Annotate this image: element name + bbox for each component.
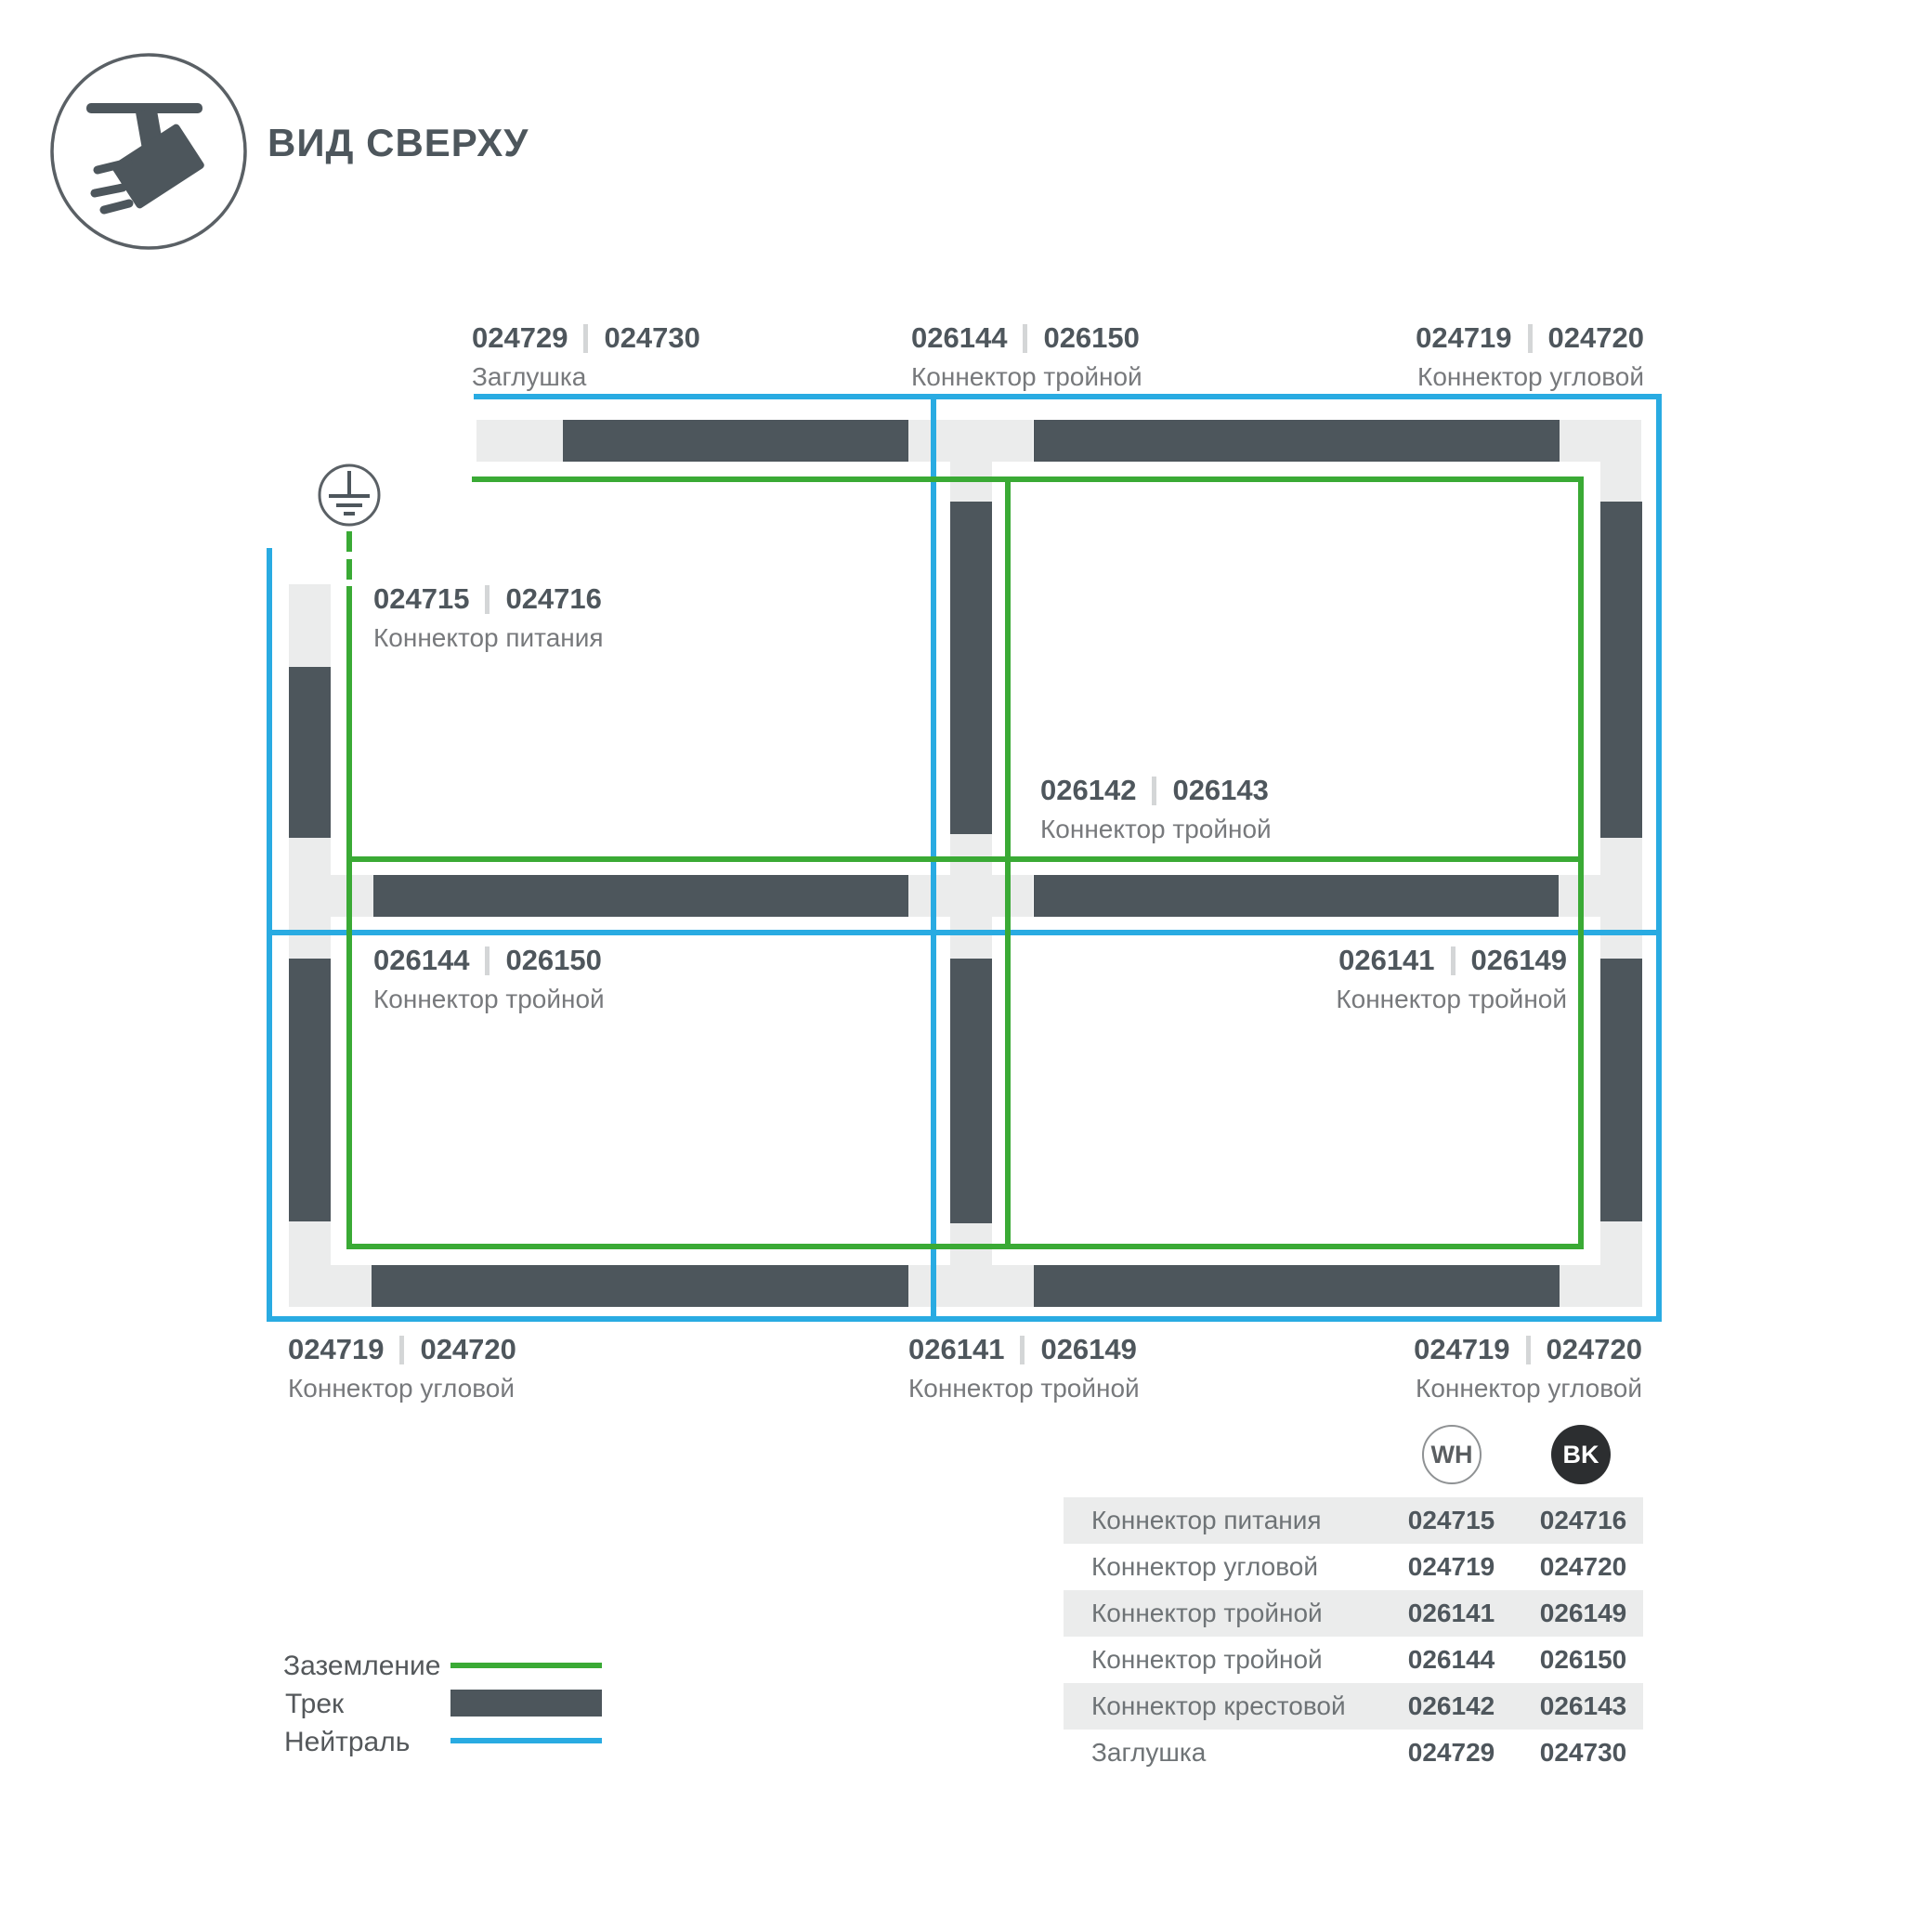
connector-corner-top-right <box>1560 420 1641 462</box>
track-segment <box>950 959 992 1223</box>
neutral-line-left <box>267 548 272 1322</box>
label-bottom-right-corner: 024719024720 Коннектор угловой <box>1414 1333 1642 1403</box>
top-view-installation-diagram: ВИД СВЕРХУ <box>0 0 1932 1932</box>
connector-tee-top <box>908 420 1033 462</box>
legend-swatch-ground-line <box>450 1663 602 1668</box>
legend-swatch-track-bar <box>450 1690 602 1717</box>
ground-line-top <box>472 476 1584 482</box>
neutral-line-middle <box>267 930 1662 935</box>
connector-power-feed <box>289 584 331 667</box>
connector-tee-mid-left-stub <box>331 875 373 917</box>
track-segment <box>289 959 331 1221</box>
neutral-line-bottom <box>267 1316 1662 1322</box>
page-title: ВИД СВЕРХУ <box>268 121 529 165</box>
parts-table: Коннектор питания 024715 024716 Коннекто… <box>1064 1497 1643 1776</box>
code-separator <box>1528 324 1533 353</box>
table-row: Коннектор угловой 024719 024720 <box>1064 1544 1643 1590</box>
ground-line-center <box>1005 476 1011 1249</box>
connector-corner-top-right-stub <box>1600 462 1641 502</box>
track-segment <box>289 667 331 838</box>
label-top-corner: 024719024720 Коннектор угловой <box>1416 321 1644 392</box>
legend-item-neutral: Нейтраль <box>284 1727 410 1758</box>
connector-tee-mid-right <box>1600 838 1642 959</box>
ground-line-right <box>1578 476 1584 1249</box>
label-top-tee: 026144026150 Коннектор тройной <box>911 321 1142 392</box>
code-separator <box>1526 1336 1531 1364</box>
table-row: Заглушка 024729 024730 <box>1064 1730 1643 1776</box>
ground-line-left <box>346 586 352 1249</box>
label-bottom-left-corner: 024719024720 Коннектор угловой <box>288 1333 516 1403</box>
ground-line-bottom <box>346 1244 1584 1249</box>
label-bottom-tee: 026141026149 Коннектор тройной <box>908 1333 1140 1403</box>
connector-cross-center-stub <box>950 834 992 959</box>
code-separator <box>1020 1336 1025 1364</box>
ground-line-dashed-drop <box>346 531 352 584</box>
connector-tee-mid-left <box>289 838 331 959</box>
ground-line-middle <box>346 856 1584 862</box>
label-power-feed: 024715024716 Коннектор питания <box>373 582 604 653</box>
connector-tee-bottom <box>908 1265 1034 1307</box>
ground-earth-icon <box>316 462 383 529</box>
track-spotlight-icon <box>48 51 249 252</box>
legend-item-ground: Заземление <box>283 1651 440 1682</box>
table-row: Коннектор питания 024715 024716 <box>1064 1497 1643 1544</box>
neutral-line-top <box>474 394 1662 399</box>
connector-corner-bottom-right-stub <box>1600 1221 1642 1307</box>
code-separator <box>583 324 588 353</box>
track-segment <box>372 1265 908 1307</box>
table-row: Коннектор тройной 026141 026149 <box>1064 1590 1643 1637</box>
track-segment <box>373 875 908 917</box>
color-badge-black: BK <box>1551 1425 1611 1484</box>
legend-item-track: Трек <box>285 1689 344 1720</box>
neutral-line-right <box>1656 394 1662 1322</box>
color-badge-white: WH <box>1422 1425 1482 1484</box>
track-segment <box>950 502 992 834</box>
code-separator <box>1023 324 1027 353</box>
label-center-cross: 026142026143 Коннектор тройной <box>1040 774 1272 844</box>
track-segment <box>1600 502 1642 838</box>
table-row: Коннектор крестовой 026142 026143 <box>1064 1683 1643 1730</box>
code-separator <box>399 1336 404 1364</box>
track-segment <box>1600 959 1642 1221</box>
label-mid-left-tee: 026144026150 Коннектор тройной <box>373 944 605 1014</box>
code-separator <box>485 585 490 614</box>
label-top-endcap: 024729024730 Заглушка <box>472 321 700 392</box>
legend-swatch-neutral-line <box>450 1738 602 1743</box>
track-segment <box>1034 875 1559 917</box>
code-separator <box>1152 777 1156 805</box>
track-segment <box>1034 1265 1560 1307</box>
connector-endcap-top <box>476 420 563 462</box>
code-separator <box>1451 946 1456 975</box>
track-segment <box>1034 420 1560 462</box>
code-separator <box>485 946 490 975</box>
label-mid-right-tee: 026141026149 Коннектор тройной <box>1336 944 1567 1014</box>
connector-corner-bottom-left-stub <box>289 1265 372 1307</box>
table-row: Коннектор тройной 026144 026150 <box>1064 1637 1643 1683</box>
track-segment <box>563 420 908 462</box>
